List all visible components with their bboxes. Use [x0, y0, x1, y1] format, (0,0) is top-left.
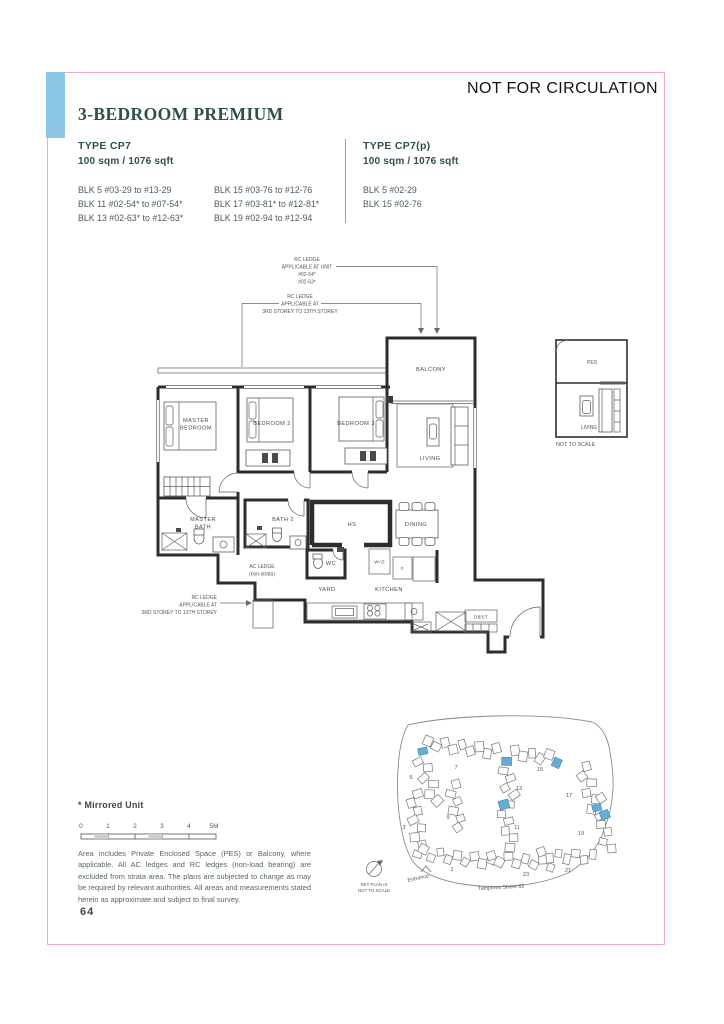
page-number: 64 — [80, 906, 94, 918]
coffee-table — [427, 418, 439, 446]
site-building — [571, 849, 580, 858]
label-bedroom2: BEDROOM 2 — [253, 421, 291, 427]
site-building — [426, 853, 436, 863]
site-building — [607, 844, 616, 853]
site-building — [418, 772, 430, 784]
site-block-number: 3 — [402, 825, 405, 831]
site-building-highlighted — [498, 799, 510, 810]
svg-text:4: 4 — [187, 823, 191, 830]
label-yard: YARD — [319, 587, 336, 593]
site-building — [501, 826, 509, 835]
north-compass-icon: KEY PLAN IS NOT TO SCALE — [358, 860, 390, 893]
type-cp7p-name: TYPE CP7(p) — [363, 140, 459, 152]
label-bath2: BATH 2 — [272, 517, 294, 523]
site-building — [417, 824, 426, 832]
site-block-number: 23 — [523, 872, 529, 878]
site-building — [603, 827, 612, 836]
rc-ledge-storey-annotation-left: RC LEDGE APPLICABLE AT 3RD STOREY TO 13T… — [142, 595, 252, 616]
kitchen-counter-right — [413, 557, 435, 581]
site-plan: 7515139311171912321 Entrance Tampines St… — [358, 700, 664, 900]
site-building — [599, 838, 608, 846]
svg-text:APPLICABLE AT UNIT: APPLICABLE AT UNIT — [282, 265, 333, 271]
street-label: Tampines Street 62 — [478, 884, 525, 892]
label-ac-ledge-2: (non-strata) — [249, 572, 275, 578]
label-fridge: F — [401, 566, 404, 571]
site-building — [511, 859, 521, 869]
watermark: NOT FOR CIRCULATION — [467, 80, 658, 98]
site-building-highlighted — [551, 757, 562, 769]
site-building — [509, 834, 518, 842]
site-building — [423, 763, 433, 772]
type-cp7-blocks-col1: BLK 5 #03-29 to #13-29 BLK 11 #02-54* to… — [78, 183, 183, 226]
label-ac-ledge-1: AC LEDGE — [249, 564, 275, 570]
site-building — [412, 788, 423, 798]
sofa — [451, 407, 468, 465]
svg-text:3RD STOREY TO 13TH STOREY: 3RD STOREY TO 13TH STOREY — [262, 309, 338, 315]
site-building-highlighted — [418, 747, 428, 755]
label-pes: PES — [587, 360, 598, 366]
site-building — [491, 742, 501, 753]
inset-table — [580, 396, 593, 416]
site-building — [582, 788, 591, 797]
label-master-2: BEDROOM — [180, 426, 212, 432]
site-building — [460, 857, 470, 867]
site-building — [500, 783, 511, 793]
rc-ledge-strip — [158, 368, 387, 373]
bath2-vanity — [290, 536, 306, 549]
column — [386, 396, 393, 403]
svg-text:RC LEDGE: RC LEDGE — [287, 294, 313, 300]
disclaimer-text: Area includes Private Enclosed Space (PE… — [78, 848, 311, 905]
site-building-highlighted — [592, 803, 602, 812]
site-building — [596, 820, 605, 828]
svg-text:3: 3 — [160, 823, 164, 830]
svg-text:APPLICABLE AT: APPLICABLE AT — [281, 302, 319, 308]
entrance-door-arc — [510, 607, 540, 637]
svg-text:RC LEDGE: RC LEDGE — [294, 257, 320, 263]
type-cp7p-header: TYPE CP7(p) 100 sqm / 1076 sqft — [363, 140, 459, 167]
accent-bar — [46, 72, 65, 138]
svg-text:2: 2 — [133, 823, 137, 830]
svg-text:APPLICABLE AT: APPLICABLE AT — [179, 603, 217, 609]
site-block-number: 11 — [514, 825, 520, 831]
label-wd: W+D — [374, 560, 384, 565]
svg-text:KEY PLAN IS: KEY PLAN IS — [361, 882, 388, 887]
site-building — [546, 863, 555, 873]
site-block-number: 7 — [454, 765, 457, 771]
site-block-number: 1 — [450, 867, 453, 873]
site-building — [437, 848, 444, 856]
floorplan-page: NOT FOR CIRCULATION 3-BEDROOM PREMIUM TY… — [0, 0, 724, 1024]
column-divider — [345, 139, 346, 223]
blk-line: BLK 15 #02-76 — [363, 197, 422, 211]
site-building — [412, 757, 424, 767]
blk-line: BLK 19 #02-94 to #12-94 — [214, 211, 319, 225]
site-building — [453, 850, 463, 860]
site-building — [518, 751, 528, 762]
label-living: LIVING — [419, 456, 440, 462]
site-buildings: 7515139311171912321 — [402, 735, 616, 878]
site-building — [582, 761, 592, 772]
site-building — [407, 814, 419, 825]
site-building — [443, 854, 452, 864]
site-building — [589, 849, 597, 859]
site-building — [503, 817, 514, 826]
site-building — [505, 843, 515, 852]
svg-text:#02-54*: #02-54* — [298, 272, 316, 278]
label-wc: WC — [326, 561, 336, 567]
site-building — [445, 789, 456, 798]
label-kitchen: KITCHEN — [375, 587, 403, 593]
bedroom2-bed — [247, 398, 293, 442]
site-building — [528, 748, 535, 758]
site-building — [546, 853, 554, 863]
master-bath-vanity — [213, 537, 234, 552]
site-building — [451, 779, 461, 789]
label-inset-living: LIVING — [581, 425, 598, 431]
svg-text:1: 1 — [106, 823, 110, 830]
page-title: 3-BEDROOM PREMIUM — [78, 104, 284, 125]
type-cp7-name: TYPE CP7 — [78, 140, 174, 152]
site-building — [406, 798, 416, 809]
svg-text:0: 0 — [79, 823, 83, 830]
rc-ledge-column — [253, 600, 273, 628]
site-building — [521, 853, 530, 864]
type-cp7-header: TYPE CP7 100 sqm / 1076 sqft — [78, 140, 174, 167]
site-building — [587, 779, 597, 787]
entrance-marker: Entrance — [407, 866, 431, 884]
site-building — [483, 748, 492, 759]
site-block-number: 13 — [516, 786, 522, 792]
floorplan-drawing: RC LEDGE APPLICABLE AT UNIT #02-54* #02-… — [140, 250, 555, 665]
label-master-bath-2: BATH — [195, 525, 211, 531]
site-building — [425, 790, 435, 799]
site-block-number: 15 — [537, 767, 543, 773]
site-building — [498, 767, 508, 775]
site-building — [504, 852, 513, 860]
site-building — [475, 741, 485, 752]
site-building — [477, 858, 487, 869]
blk-line: BLK 17 #03-81* to #12-81* — [214, 197, 319, 211]
rc-ledge-storey-annotation-top: RC LEDGE APPLICABLE AT 3RD STOREY TO 13T… — [242, 294, 424, 367]
site-building — [428, 780, 438, 787]
site-building — [448, 744, 459, 755]
type-cp7p-area: 100 sqm / 1076 sqft — [363, 156, 459, 167]
site-block-number: 9 — [446, 815, 449, 821]
label-master-1: MASTER — [183, 418, 209, 424]
svg-text:NOT TO SCALE: NOT TO SCALE — [358, 888, 390, 893]
label-dining: DINING — [405, 522, 427, 528]
site-building — [580, 855, 588, 864]
site-building-highlighted — [502, 757, 512, 765]
site-block-number: 17 — [566, 793, 572, 799]
svg-text:RC LEDGE: RC LEDGE — [191, 595, 217, 601]
label-dbst: DB/ST — [474, 615, 488, 620]
inset-keyplan: PES LIVING NOT TO SCALE — [545, 330, 640, 450]
type-cp7-area: 100 sqm / 1076 sqft — [78, 156, 174, 167]
blk-line: BLK 15 #03-76 to #12-76 — [214, 183, 319, 197]
site-building — [452, 822, 463, 833]
site-building — [528, 860, 539, 871]
hob — [364, 604, 386, 619]
site-building — [465, 746, 476, 757]
label-balcony: BALCONY — [416, 367, 446, 373]
blk-line: BLK 5 #03-29 to #13-29 — [78, 183, 183, 197]
entrance-label: Entrance — [407, 873, 429, 884]
label-hs: HS — [348, 522, 357, 528]
svg-text:3RD STOREY TO 13TH STOREY: 3RD STOREY TO 13TH STOREY — [142, 610, 218, 616]
kitchen-counter — [307, 603, 412, 620]
bedroom3-bed — [339, 397, 384, 441]
type-cp7p-blocks: BLK 5 #02-29 BLK 15 #02-76 — [363, 183, 422, 211]
site-building — [410, 832, 420, 842]
site-building — [555, 849, 563, 857]
label-master-bath-1: MASTER — [190, 517, 216, 523]
blk-line: BLK 11 #02-54* to #07-54* — [78, 197, 183, 211]
mirrored-unit-note: * Mirrored Unit — [78, 800, 144, 810]
inset-sofa — [599, 389, 612, 432]
inset-caption: NOT TO SCALE — [556, 442, 596, 448]
site-building — [470, 852, 480, 862]
site-block-number: 5 — [409, 775, 412, 781]
site-building — [413, 806, 422, 816]
label-bedroom3: BEDROOM 3 — [337, 421, 375, 427]
blk-line: BLK 5 #02-29 — [363, 183, 422, 197]
type-cp7-blocks-col2: BLK 15 #03-76 to #12-76 BLK 17 #03-81* t… — [214, 183, 319, 226]
scale-bar: 0 1 2 3 4 5M — [70, 818, 225, 844]
blk-line: BLK 13 #02-63* to #12-63* — [78, 211, 183, 225]
oven — [405, 603, 423, 620]
site-block-number: 19 — [578, 831, 584, 837]
svg-text:5M: 5M — [209, 823, 218, 830]
site-building — [576, 770, 588, 782]
site-building — [563, 854, 572, 865]
svg-text:#02-63*: #02-63* — [298, 280, 316, 286]
site-block-number: 21 — [565, 868, 571, 874]
site-building — [497, 811, 505, 818]
